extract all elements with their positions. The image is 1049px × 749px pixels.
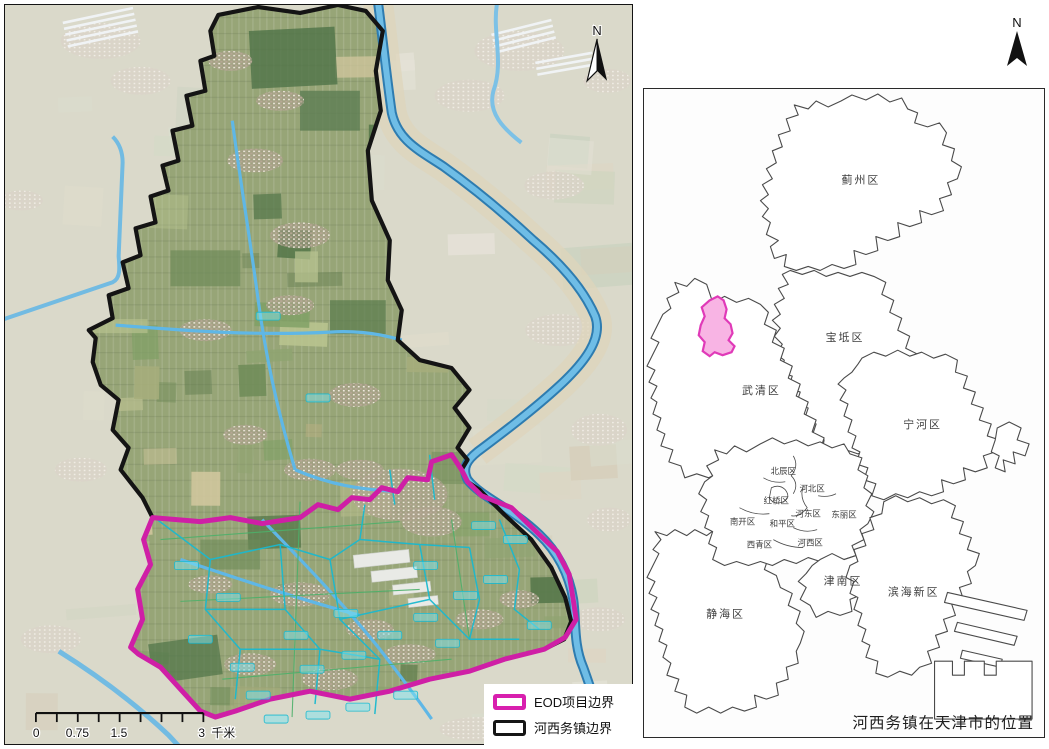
locator-map-panel: 蓟州区 宝坻区 武清区 宁河区 北辰区 河北区 红桥区 河东区 东丽区 南开区 … [643, 88, 1045, 738]
scale-unit: 千米 [211, 726, 235, 740]
label-xiqing: 西青区 [747, 540, 773, 550]
label-binhai: 滨海新区 [888, 584, 940, 598]
legend-label-eod: EOD项目边界 [534, 692, 614, 711]
legend-item-eod: EOD项目边界 [493, 692, 627, 711]
tianjin-districts-map: 蓟州区 宝坻区 武清区 宁河区 北辰区 河北区 红桥区 河东区 东丽区 南开区 … [644, 89, 1044, 737]
locator-caption: 河西务镇在天津市的位置 [852, 711, 1034, 733]
scale-tick-1: 0.75 [66, 726, 90, 740]
legend-label-town: 河西务镇边界 [534, 718, 612, 737]
town-boundary-swatch [493, 720, 526, 736]
label-dongli: 东丽区 [831, 510, 857, 520]
label-ninghe: 宁河区 [903, 417, 942, 431]
district-polygons [647, 94, 1032, 719]
scale-tick-3: 3 [198, 726, 205, 740]
label-baodi: 宝坻区 [826, 330, 865, 344]
label-heping: 和平区 [770, 519, 796, 529]
north-label-right: N [1012, 15, 1021, 30]
legend: EOD项目边界 河西务镇边界 [484, 684, 636, 745]
north-arrow-right: N [1000, 14, 1034, 72]
north-arrow-icon-right [1007, 31, 1027, 66]
harbor-pier-2 [954, 622, 1017, 645]
label-beichen: 北辰区 [771, 466, 797, 476]
label-jinnan: 津南区 [824, 574, 863, 587]
coastal-claw [991, 422, 1029, 472]
north-label: N [592, 23, 601, 38]
scale-tick-2: 1.5 [111, 726, 128, 740]
label-hexi: 河西区 [798, 538, 824, 548]
eod-boundary-swatch [493, 694, 526, 710]
label-hedong: 河东区 [796, 509, 822, 519]
figure: N 0 0.75 1.5 3 千米 [0, 0, 1049, 749]
label-jizhou: 蓟州区 [842, 174, 881, 187]
satellite-map-panel: N 0 0.75 1.5 3 千米 [4, 4, 633, 745]
harbor-pier-1 [944, 592, 1027, 620]
satellite-map: N 0 0.75 1.5 3 千米 [5, 5, 632, 744]
label-hebei: 河北区 [799, 484, 825, 494]
label-nankai: 南开区 [730, 517, 756, 527]
label-wuqing: 武清区 [742, 384, 781, 397]
scale-tick-0: 0 [33, 726, 40, 740]
legend-item-town: 河西务镇边界 [493, 718, 627, 737]
label-jinghai: 静海区 [706, 606, 745, 620]
label-hongqiao: 红桥区 [764, 496, 790, 506]
